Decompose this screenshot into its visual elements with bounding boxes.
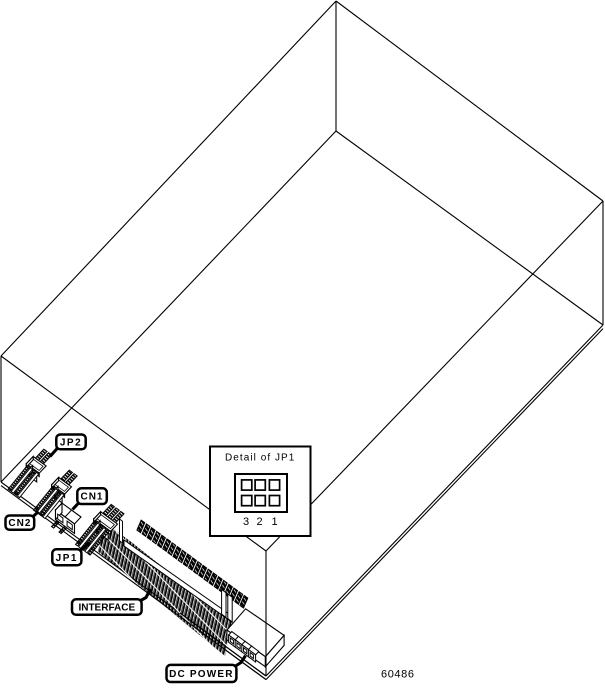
svg-text:1: 1 <box>271 516 277 528</box>
svg-text:3: 3 <box>243 516 249 528</box>
svg-text:JP2: JP2 <box>60 437 82 448</box>
svg-text:60486: 60486 <box>381 669 415 681</box>
svg-text:2: 2 <box>256 516 262 528</box>
svg-text:Detail of JP1: Detail of JP1 <box>225 453 295 464</box>
svg-text:DC POWER: DC POWER <box>169 669 234 680</box>
svg-text:INTERFACE: INTERFACE <box>78 603 135 614</box>
svg-text:CN1: CN1 <box>80 492 103 503</box>
svg-text:CN2: CN2 <box>8 518 31 529</box>
svg-text:JP1: JP1 <box>56 553 78 564</box>
